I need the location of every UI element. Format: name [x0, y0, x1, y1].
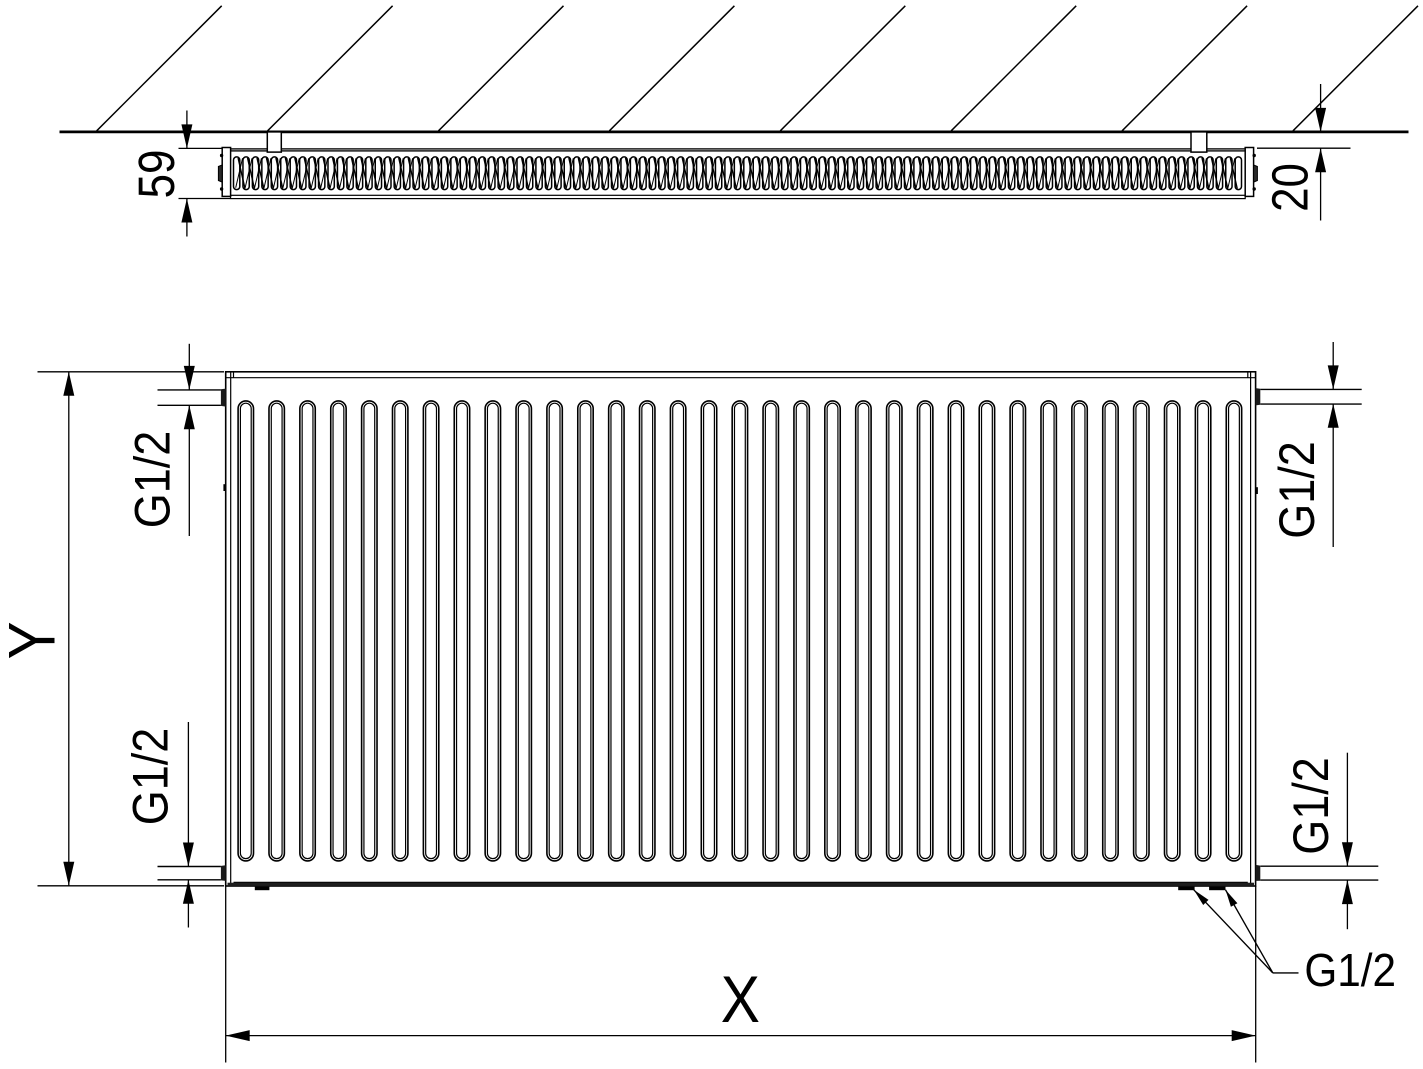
svg-text:G1/2: G1/2: [125, 431, 181, 529]
svg-text:G1/2: G1/2: [123, 728, 179, 826]
svg-text:Y: Y: [0, 622, 70, 660]
svg-text:G1/2: G1/2: [1284, 757, 1340, 855]
svg-text:X: X: [721, 963, 760, 1037]
svg-text:20: 20: [1262, 163, 1319, 212]
svg-text:G1/2: G1/2: [1304, 945, 1396, 996]
svg-text:G1/2: G1/2: [1270, 441, 1326, 539]
svg-text:59: 59: [129, 150, 186, 199]
